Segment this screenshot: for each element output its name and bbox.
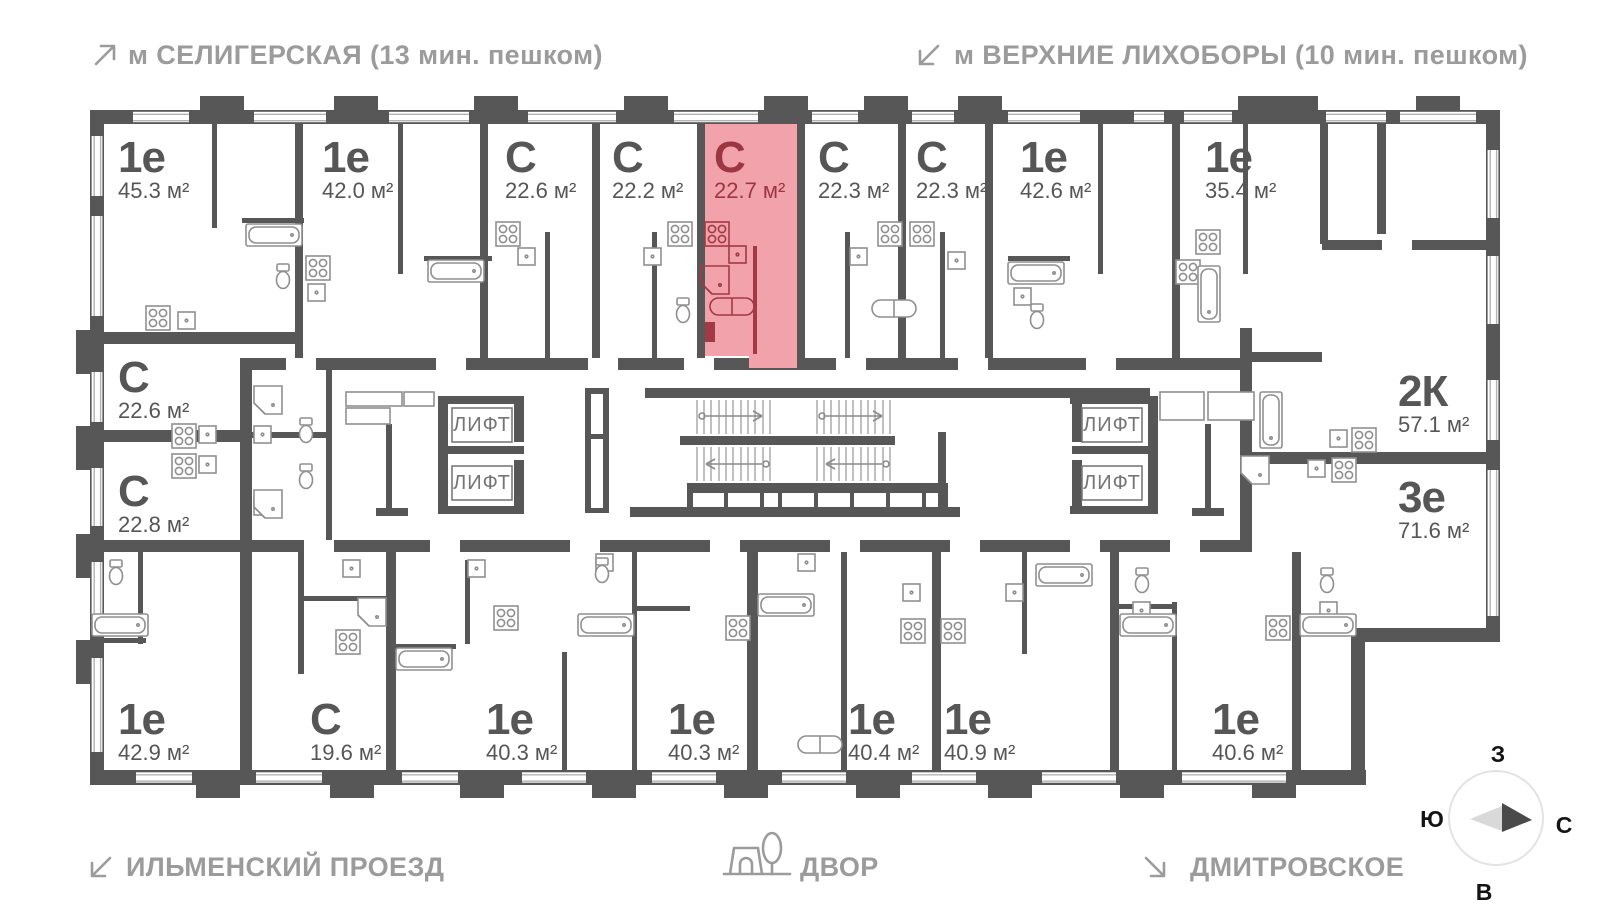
- svg-text:С: С: [118, 467, 149, 516]
- svg-text:1е: 1е: [118, 695, 165, 744]
- svg-text:22.3 м²: 22.3 м²: [916, 178, 987, 203]
- svg-text:22.2 м²: 22.2 м²: [612, 178, 683, 203]
- floor-plan-page: м СЕЛИГЕРСКАЯ (13 мин. пешком) м ВЕРХНИЕ…: [0, 0, 1600, 920]
- unit-s-19-6[interactable]: С19.6 м²: [252, 552, 386, 770]
- unit-1e-40-3-a[interactable]: 1е40.3 м²: [396, 552, 632, 770]
- street-left-label: ИЛЬМЕНСКИЙ ПРОЕЗД: [126, 851, 444, 882]
- svg-text:40.9 м²: 40.9 м²: [944, 740, 1015, 765]
- compass-east: В: [1476, 879, 1493, 905]
- unit-1e-40-3-b[interactable]: 1е40.3 м²: [637, 552, 747, 770]
- svg-text:22.6 м²: 22.6 м²: [118, 398, 189, 423]
- svg-text:22.8 м²: 22.8 м²: [118, 512, 189, 537]
- elevator-bank-right: ЛИФТ ЛИФТ: [1070, 396, 1158, 514]
- unit-1e-40-9[interactable]: 1е40.9 м²: [941, 552, 1022, 770]
- svg-text:С: С: [818, 133, 849, 182]
- street-right-arrow-icon: [1146, 858, 1164, 876]
- elevator-label: ЛИФТ: [453, 472, 511, 494]
- svg-text:19.6 м²: 19.6 м²: [310, 740, 381, 765]
- svg-text:42.0 м²: 42.0 м²: [322, 178, 393, 203]
- svg-text:40.3 м²: 40.3 м²: [486, 740, 557, 765]
- elevator-label: ЛИФТ: [453, 414, 511, 436]
- unit-s-22-6-left[interactable]: С22.6 м²: [104, 344, 240, 430]
- svg-text:40.6 м²: 40.6 м²: [1212, 740, 1283, 765]
- svg-text:1е: 1е: [848, 695, 895, 744]
- courtyard-label: ДВОР: [800, 852, 879, 882]
- svg-text:1е: 1е: [1020, 133, 1067, 182]
- unit-2k-57-1[interactable]: 2К57.1 м²: [1252, 352, 1486, 452]
- svg-text:57.1 м²: 57.1 м²: [1398, 412, 1469, 437]
- metro-right-label: м ВЕРХНИЕ ЛИХОБОРЫ (10 мин. пешком): [954, 40, 1528, 70]
- compass-south: Ю: [1420, 806, 1444, 832]
- stairs: [690, 400, 945, 510]
- street-right-label: ДМИТРОВСКОЕ: [1190, 852, 1404, 882]
- svg-text:С: С: [505, 133, 536, 182]
- svg-text:С: С: [118, 353, 149, 402]
- unit-s-22-3-b[interactable]: С22.3 м²: [906, 124, 987, 358]
- svg-text:С: С: [916, 133, 947, 182]
- svg-text:22.7 м²: 22.7 м²: [714, 178, 785, 203]
- svg-text:22.6 м²: 22.6 м²: [505, 178, 576, 203]
- svg-text:1е: 1е: [944, 695, 991, 744]
- compass: З Ю С В: [1420, 741, 1572, 905]
- svg-text:1е: 1е: [668, 695, 715, 744]
- svg-text:42.6 м²: 42.6 м²: [1020, 178, 1091, 203]
- svg-text:42.9 м²: 42.9 м²: [118, 740, 189, 765]
- unit-1e-40-6[interactable]: 1е40.6 м²: [1181, 552, 1292, 770]
- svg-text:С: С: [612, 133, 643, 182]
- unit-1e-42-6[interactable]: 1е42.6 м²: [993, 124, 1172, 358]
- unit-1e-45-3[interactable]: 1е45.3 м²: [104, 124, 295, 332]
- svg-text:1е: 1е: [486, 695, 533, 744]
- svg-text:1е: 1е: [1212, 695, 1259, 744]
- unit-s-22-3-a[interactable]: С22.3 м²: [805, 124, 898, 358]
- unit-s-22-8[interactable]: С22.8 м²: [104, 442, 240, 540]
- svg-text:45.3 м²: 45.3 м²: [118, 178, 189, 203]
- unit-s-22-7-highlighted[interactable]: С22.7 м²: [705, 124, 797, 356]
- unit-1e-42-9[interactable]: 1е42.9 м²: [104, 552, 240, 770]
- unit-1e-42-0[interactable]: 1е42.0 м²: [303, 124, 480, 358]
- svg-text:40.4 м²: 40.4 м²: [848, 740, 919, 765]
- unit-1e-35-4[interactable]: 1е35.4 м²: [1180, 124, 1320, 358]
- svg-text:22.3 м²: 22.3 м²: [818, 178, 889, 203]
- elevator-label: ЛИФТ: [1083, 472, 1141, 494]
- elevator-bank-left: ЛИФТ ЛИФТ: [438, 396, 524, 514]
- svg-text:1е: 1е: [118, 133, 165, 182]
- svg-text:71.6 м²: 71.6 м²: [1398, 518, 1469, 543]
- svg-text:1е: 1е: [322, 133, 369, 182]
- metro-left-label: м СЕЛИГЕРСКАЯ (13 мин. пешком): [128, 40, 603, 70]
- svg-text:С: С: [310, 695, 341, 744]
- unit-s-22-6-top[interactable]: С22.6 м²: [488, 124, 592, 358]
- metro-left-arrow-icon: [96, 46, 114, 64]
- metro-right-arrow-icon: [920, 46, 938, 64]
- unit-1e-40-4[interactable]: 1е40.4 м²: [847, 552, 932, 770]
- svg-text:С: С: [714, 133, 745, 182]
- svg-text:35.4 м²: 35.4 м²: [1205, 178, 1276, 203]
- svg-text:40.3 м²: 40.3 м²: [668, 740, 739, 765]
- unit-regions: 1е45.3 м² 1е42.0 м² С22.6 м² С22.2 м² С2…: [104, 124, 1486, 770]
- courtyard-icon: [724, 833, 790, 874]
- svg-text:2К: 2К: [1398, 367, 1448, 416]
- svg-text:3е: 3е: [1398, 473, 1445, 522]
- street-left-arrow-icon: [92, 858, 110, 876]
- unit-s-22-2[interactable]: С22.2 м²: [600, 124, 697, 358]
- svg-text:1е: 1е: [1205, 133, 1252, 182]
- compass-north: С: [1556, 812, 1573, 838]
- compass-west: З: [1491, 741, 1505, 767]
- elevator-label: ЛИФТ: [1083, 414, 1141, 436]
